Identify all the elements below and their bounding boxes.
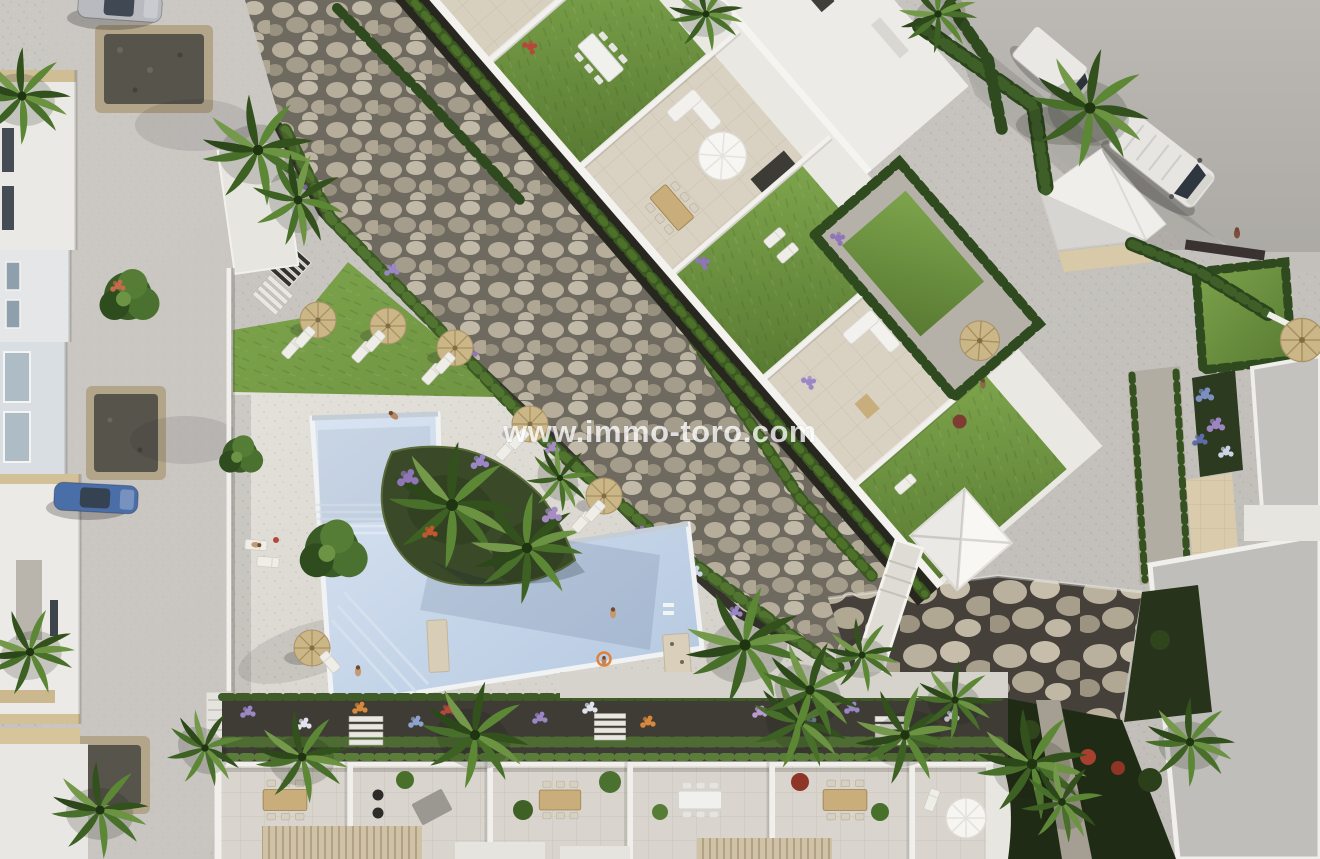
townhouse-terraces [218, 762, 1011, 859]
pool-equipment-box [663, 633, 692, 677]
aerial-render: www.immo-toro.com [0, 0, 1320, 859]
gray-roof-a [1252, 356, 1320, 522]
white-umbrella-terrace [946, 798, 986, 838]
pool-shower [427, 620, 450, 673]
watermark: www.immo-toro.com [502, 414, 817, 449]
blue-car [53, 482, 138, 514]
render-canvas: www.immo-toro.com [0, 0, 1320, 859]
straw-parasol [1280, 318, 1320, 361]
